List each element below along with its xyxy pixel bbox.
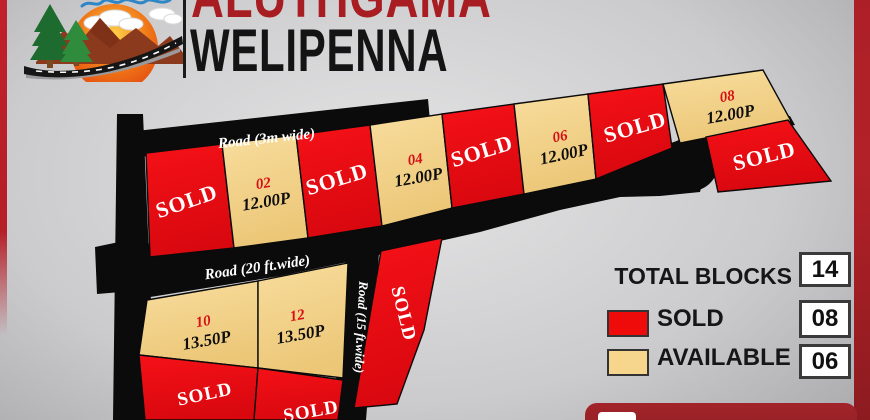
legend: TOTAL BLOCKS 14 SOLD 08 AVAILABLE 06 <box>0 0 870 420</box>
contact-bar <box>585 403 857 420</box>
legend-sold-count-box: 08 <box>799 300 851 338</box>
legend-sold-swatch <box>607 310 649 337</box>
legend-sold-label: SOLD <box>657 305 724 333</box>
contact-icon-plate <box>598 412 636 420</box>
legend-available-swatch <box>607 349 649 376</box>
legend-available-count-box: 06 <box>799 344 851 379</box>
legend-available-label: AVAILABLE <box>657 344 791 372</box>
right-red-border <box>854 0 870 420</box>
legend-total-label: TOTAL BLOCKS <box>604 263 792 290</box>
flyer-canvas: ALUTHGAMA WELIPENNA <box>0 0 870 420</box>
legend-total-count-box: 14 <box>799 252 851 287</box>
left-red-border <box>0 0 7 420</box>
